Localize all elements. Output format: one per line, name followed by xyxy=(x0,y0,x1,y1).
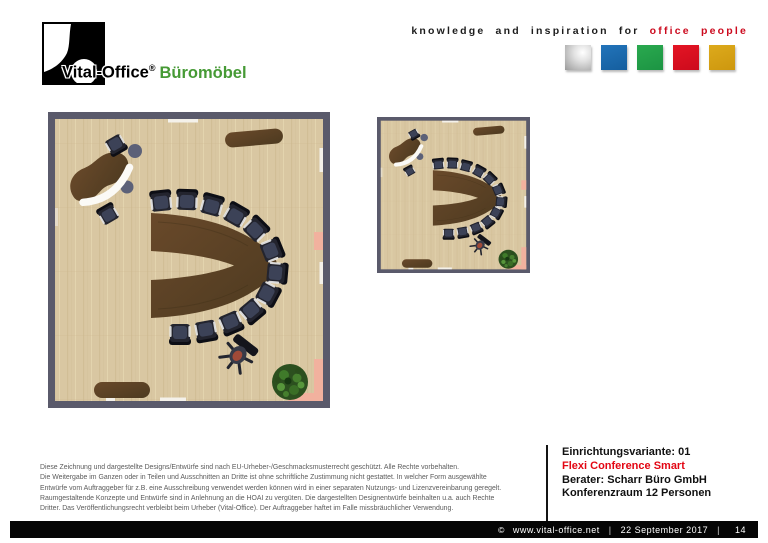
footer-website: www.vital-office.net xyxy=(513,525,600,535)
brand-color-squares xyxy=(565,45,735,70)
product-name: Flexi Conference Smart xyxy=(562,460,711,474)
registered-mark: ® xyxy=(149,63,156,73)
floor-plan-large xyxy=(48,112,330,408)
brand-square-blue xyxy=(601,45,627,70)
disclaimer-line: Die Weitergabe im Ganzen oder in Teilen … xyxy=(40,473,540,483)
brand-wordmark: Vital-Office®Büromöbel xyxy=(62,63,247,83)
disclaimer-line: Raumgestaltende Konzepte und Entwürfe si… xyxy=(40,494,540,504)
consultant-label: Berater: Scharr Büro GmbH xyxy=(562,474,711,488)
tagline-red: office people xyxy=(650,25,748,37)
disclaimer-line: Entwürfe vom Auftraggeber für z.B. eine … xyxy=(40,484,540,494)
floor-plan-small xyxy=(377,117,530,273)
disclaimer-line: Diese Zeichnung und dargestellte Designs… xyxy=(40,463,540,473)
room-label: Konferenzraum 12 Personen xyxy=(562,487,711,501)
project-info: Einrichtungsvariante: 01 Flexi Conferenc… xyxy=(562,446,711,501)
footer-bar: © www.vital-office.net | 22 September 20… xyxy=(10,521,758,538)
tagline: knowledge and inspiration for office peo… xyxy=(411,25,748,37)
footer-separator: | xyxy=(717,525,720,535)
footer-page-number: 14 xyxy=(735,525,746,535)
disclaimer-text: Diese Zeichnung und dargestellte Designs… xyxy=(40,463,540,514)
brand-square-green xyxy=(637,45,663,70)
info-divider xyxy=(546,445,548,522)
brand-square-silver xyxy=(565,45,591,70)
disclaimer-line: Dritter. Das Veröffentlichungsrecht verb… xyxy=(40,504,540,514)
footer-separator: | xyxy=(609,525,612,535)
brand-square-gold xyxy=(709,45,735,70)
footer-date: 22 September 2017 xyxy=(621,525,709,535)
brand-name: Vital-Office xyxy=(62,64,149,82)
brand-product: Büromöbel xyxy=(159,64,246,82)
brand-square-red xyxy=(673,45,699,70)
variant-label: Einrichtungsvariante: 01 xyxy=(562,446,711,460)
copyright-icon: © xyxy=(498,525,505,535)
tagline-black: knowledge and inspiration for xyxy=(411,25,639,37)
